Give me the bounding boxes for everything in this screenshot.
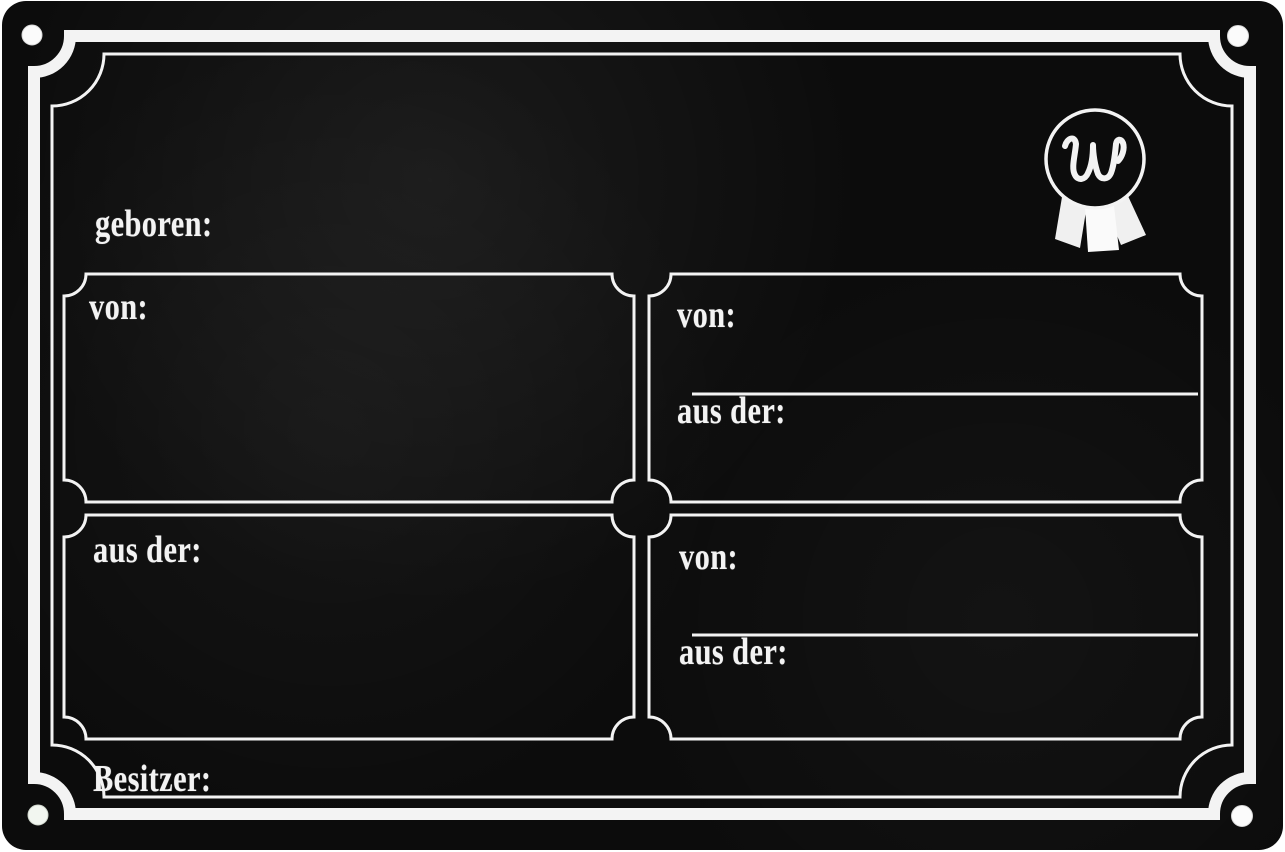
screw-hole-top-right <box>1228 26 1249 47</box>
logo-ribbon-center-tail <box>1085 206 1119 252</box>
brand-logo <box>1046 110 1146 252</box>
pedigree-bottom-right-dam-label: aus der: <box>679 633 788 671</box>
pedigree-top-right-dam-label: aus der: <box>677 392 786 430</box>
dam-bottom-left-label: aus der: <box>93 531 202 569</box>
sire-top-left-label: von: <box>89 288 148 326</box>
screw-hole-bottom-left <box>28 805 48 825</box>
born-label: geboren: <box>95 205 212 243</box>
owner-label: Besitzer: <box>93 760 211 798</box>
stall-sign-plate-graphic <box>0 0 1285 852</box>
stall-sign-photo: geboren: von: von: aus der: aus der: von… <box>0 0 1285 852</box>
pedigree-top-right-sire-label: von: <box>677 296 736 334</box>
pedigree-bottom-right-sire-label: von: <box>679 538 738 576</box>
screw-hole-bottom-right <box>1232 806 1253 827</box>
screw-hole-top-left <box>22 25 42 45</box>
